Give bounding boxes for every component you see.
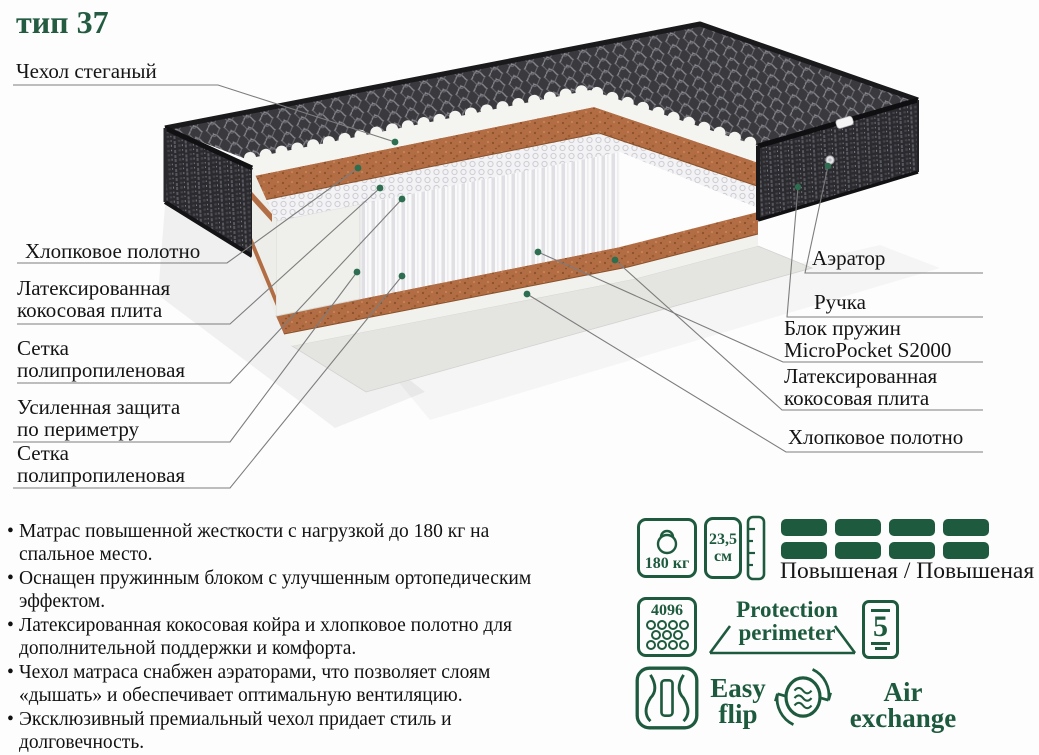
easy-flip-label: Easy flip (703, 675, 773, 727)
air-exchange-icon (770, 663, 836, 731)
page-title: тип 37 (16, 4, 109, 41)
label-cotton-top: Хлопковое полотно (25, 240, 200, 262)
label-perimeter-protection: Усиленная защита по периметру (17, 396, 180, 440)
label-coir-top: Латексированная кокосовая плита (17, 277, 170, 321)
feature-item: Матрас повышенной жесткости с нагрузкой … (6, 520, 536, 566)
feature-list: Матрас повышенной жесткости с нагрузкой … (6, 520, 536, 755)
ruler-icon (746, 515, 766, 581)
max-weight-icon: 180 кг (637, 518, 697, 578)
height-icon: 23,5 см (704, 517, 742, 579)
height-value: 23,5 (709, 531, 737, 548)
feature-item: Эксклюзивный премиальный чехол придает с… (6, 708, 536, 754)
zones-icon: 5 (862, 600, 899, 659)
feature-item: Оснащен пружинным блоком с улучшенным ор… (6, 567, 536, 613)
label-aerator: Аэратор (812, 247, 885, 269)
firmness-icon (781, 519, 989, 559)
feature-item: Латексированная кокосовая койра и хлопко… (6, 614, 536, 660)
springs-dots-icon (642, 619, 692, 653)
label-quilted-cover: Чехол стеганый (16, 60, 157, 82)
label-handle: Ручка (814, 291, 866, 313)
mattress-infographic: тип 37 Чехол стеганый Хлопковое полотно … (0, 0, 1039, 752)
air-exchange-label: Air exchange (838, 679, 968, 731)
height-unit: см (714, 548, 732, 565)
label-coir-bottom: Латексированная кокосовая плита (784, 365, 937, 409)
perimeter-frame-icon (705, 622, 860, 658)
kettlebell-icon (652, 527, 682, 555)
springs-count-icon: 4096 (637, 597, 697, 657)
label-net-bottom: Сетка полипропиленовая (17, 442, 185, 486)
easy-flip-icon (635, 666, 699, 730)
label-cotton-bottom: Хлопковое полотно (788, 426, 963, 448)
feature-item: Чехол матраса снабжен аэраторами, что по… (6, 661, 536, 707)
zones-value: 5 (873, 614, 888, 640)
springs-count-value: 4096 (651, 602, 683, 619)
label-spring-block: Блок пружин MicroPocket S2000 (784, 317, 951, 361)
max-weight-value: 180 кг (645, 555, 689, 572)
foam-perimeter-border (276, 204, 360, 316)
label-net-top: Сетка полипропиленовая (17, 337, 185, 381)
firmness-label: Повышеная / Повышеная (780, 558, 1039, 585)
